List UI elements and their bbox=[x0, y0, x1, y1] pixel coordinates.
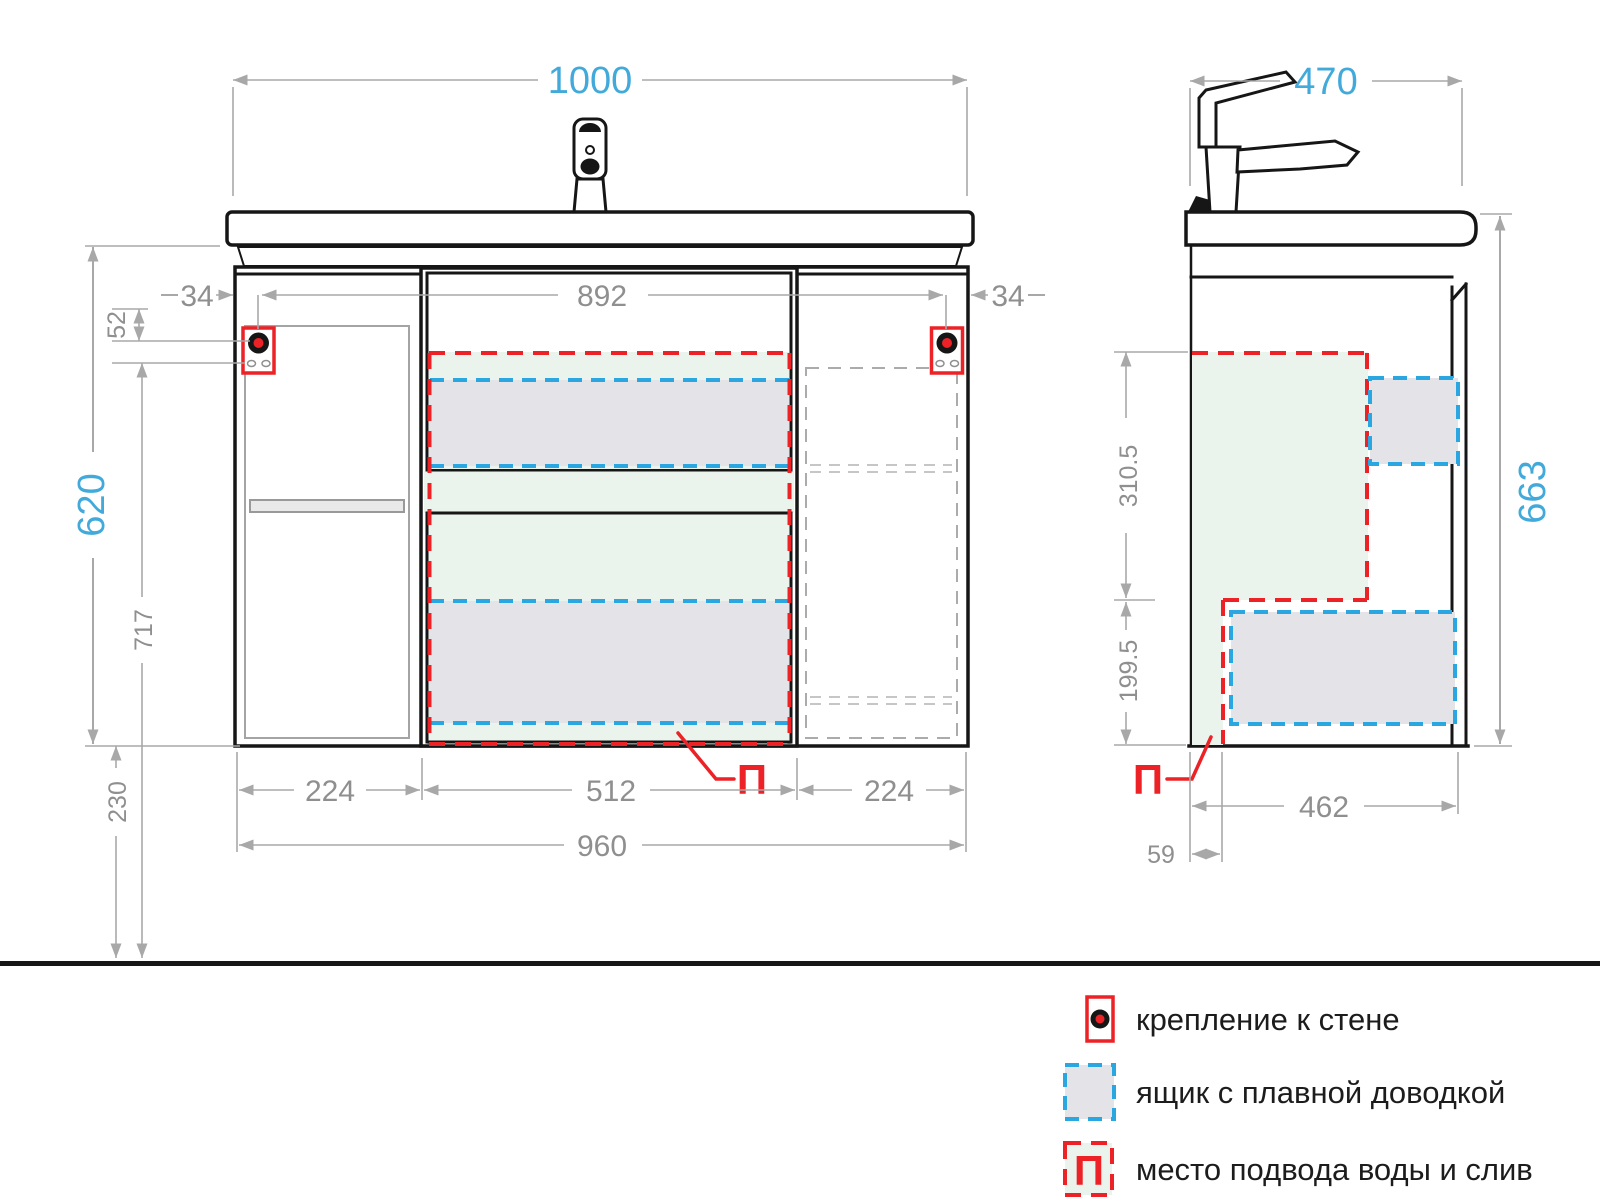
svg-text:199.5: 199.5 bbox=[1115, 640, 1143, 703]
drawer-lower-front bbox=[427, 513, 791, 742]
svg-text:310.5: 310.5 bbox=[1115, 445, 1143, 508]
legend-water-supply: П место подвода воды и слив bbox=[1065, 1143, 1533, 1195]
wall-mount-legend-icon bbox=[1087, 997, 1113, 1041]
technical-drawing-vanity: П 1000 892 34 34 bbox=[0, 0, 1600, 1200]
svg-text:1000: 1000 bbox=[548, 60, 633, 102]
svg-text:717: 717 bbox=[130, 609, 158, 651]
front-view: П 1000 892 34 34 bbox=[71, 60, 1045, 958]
dim-fastener-offset: 52 bbox=[103, 309, 250, 363]
svg-text:59: 59 bbox=[1147, 841, 1175, 869]
drawer-upper-side bbox=[1370, 378, 1458, 464]
dim-offset-left: 34 bbox=[161, 280, 233, 313]
soft-close-drawer-icon bbox=[1065, 1065, 1114, 1119]
svg-text:620: 620 bbox=[71, 473, 113, 536]
dim-total-height: 663 bbox=[1474, 214, 1554, 746]
svg-text:34: 34 bbox=[180, 280, 213, 313]
svg-text:663: 663 bbox=[1512, 460, 1554, 523]
svg-text:512: 512 bbox=[586, 775, 636, 808]
svg-text:230: 230 bbox=[104, 781, 132, 823]
countertop-side bbox=[1186, 212, 1476, 245]
side-view: П 470 663 310.5 199.5 bbox=[1114, 61, 1554, 869]
legend: крепление к стене ящик с плавной доводко… bbox=[1065, 997, 1533, 1195]
dim-cabinet-width: 960 bbox=[239, 830, 964, 863]
legend-soft-close: ящик с плавной доводкой bbox=[1065, 1065, 1505, 1119]
wall-mount-left-icon bbox=[243, 328, 274, 373]
legend-wall-mount-label: крепление к стене bbox=[1136, 1002, 1400, 1037]
dim-inner-depth: 462 bbox=[1190, 752, 1458, 862]
wall-mount-right-icon bbox=[932, 328, 963, 373]
legend-soft-close-label: ящик с плавной доводкой bbox=[1136, 1075, 1505, 1110]
legend-wall-mount: крепление к стене bbox=[1087, 997, 1400, 1041]
dim-back-offset: 59 bbox=[1147, 841, 1220, 869]
countertop-front bbox=[227, 212, 973, 245]
svg-text:960: 960 bbox=[577, 830, 627, 863]
svg-text:892: 892 bbox=[577, 280, 627, 313]
drawer-lower-side bbox=[1231, 612, 1455, 724]
dim-bottom-widths: 224 512 224 960 bbox=[237, 752, 966, 863]
legend-water-supply-label: место подвода воды и слив bbox=[1136, 1152, 1533, 1187]
svg-text:470: 470 bbox=[1294, 61, 1357, 103]
drawer-section-front bbox=[421, 268, 797, 746]
legend-water-symbol: П bbox=[1074, 1147, 1104, 1194]
drawing-canvas: П 1000 892 34 34 bbox=[0, 0, 1600, 1200]
svg-text:34: 34 bbox=[991, 280, 1024, 313]
dim-upper-zone: 310.5 bbox=[1114, 352, 1188, 600]
dim-left-door-width: 224 bbox=[239, 775, 420, 808]
dim-floor-clearance: 230 bbox=[104, 746, 132, 958]
water-point-label-side: П bbox=[1133, 756, 1163, 803]
dim-offset-right: 34 bbox=[971, 280, 1045, 313]
faucet-front-icon bbox=[574, 119, 606, 212]
basin-lip-front bbox=[238, 247, 962, 266]
dim-right-door-width: 224 bbox=[799, 775, 964, 808]
dim-lower-zone: 199.5 bbox=[1114, 602, 1186, 745]
dim-cabinet-height: 620 bbox=[71, 246, 240, 746]
svg-text:52: 52 bbox=[103, 311, 131, 339]
floor-line bbox=[0, 961, 1600, 966]
svg-text:462: 462 bbox=[1299, 791, 1349, 824]
svg-text:224: 224 bbox=[305, 775, 355, 808]
svg-text:224: 224 bbox=[864, 775, 914, 808]
left-door-shelf bbox=[250, 500, 404, 512]
dim-fastener-to-floor: 717 bbox=[130, 363, 158, 958]
water-point-label-front: П bbox=[737, 756, 767, 803]
